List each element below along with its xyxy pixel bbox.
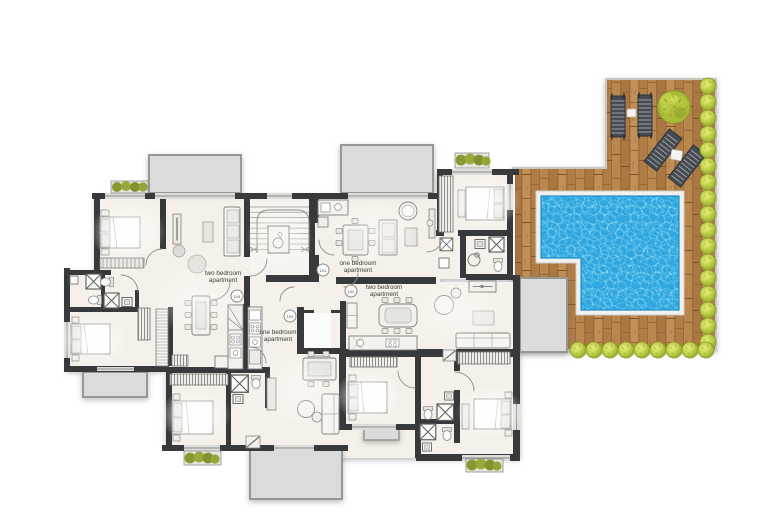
svg-text:one bedroom: one bedroom [339,260,376,267]
svg-text:104: 104 [234,294,241,299]
svg-text:one bedroom: one bedroom [259,329,296,336]
svg-text:apartment: apartment [264,336,293,343]
svg-text:apartment: apartment [344,267,373,274]
svg-text:two bedroom: two bedroom [205,270,241,277]
svg-text:two bedroom: two bedroom [366,284,402,291]
svg-text:103: 103 [287,314,294,319]
svg-text:101: 101 [320,268,327,273]
svg-text:apartment: apartment [370,291,399,298]
svg-text:apartment: apartment [209,277,238,284]
svg-text:102: 102 [348,289,355,294]
